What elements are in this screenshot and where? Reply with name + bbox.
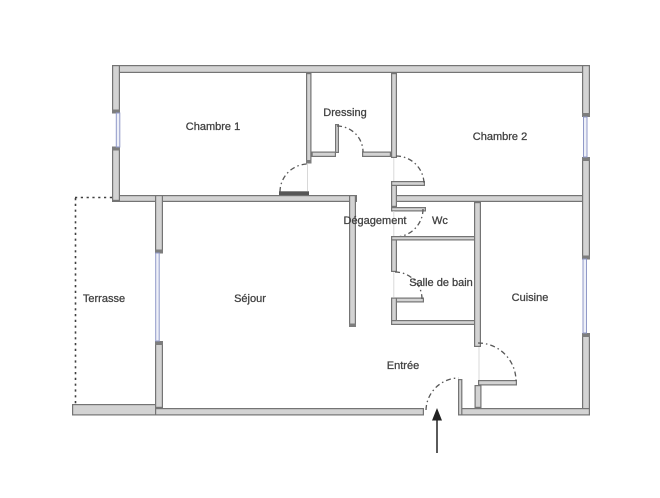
svg-text:Entrée: Entrée	[387, 360, 419, 372]
svg-text:Cuisine: Cuisine	[512, 292, 549, 304]
svg-text:Dégagement: Dégagement	[344, 215, 407, 227]
svg-text:Séjour: Séjour	[234, 293, 266, 305]
svg-text:Chambre 2: Chambre 2	[473, 131, 527, 143]
svg-text:Salle de bain: Salle de bain	[409, 277, 473, 289]
svg-text:Wc: Wc	[432, 215, 448, 227]
svg-text:Terrasse: Terrasse	[83, 293, 125, 305]
svg-text:Chambre 1: Chambre 1	[186, 121, 240, 133]
svg-text:Dressing: Dressing	[323, 107, 366, 119]
